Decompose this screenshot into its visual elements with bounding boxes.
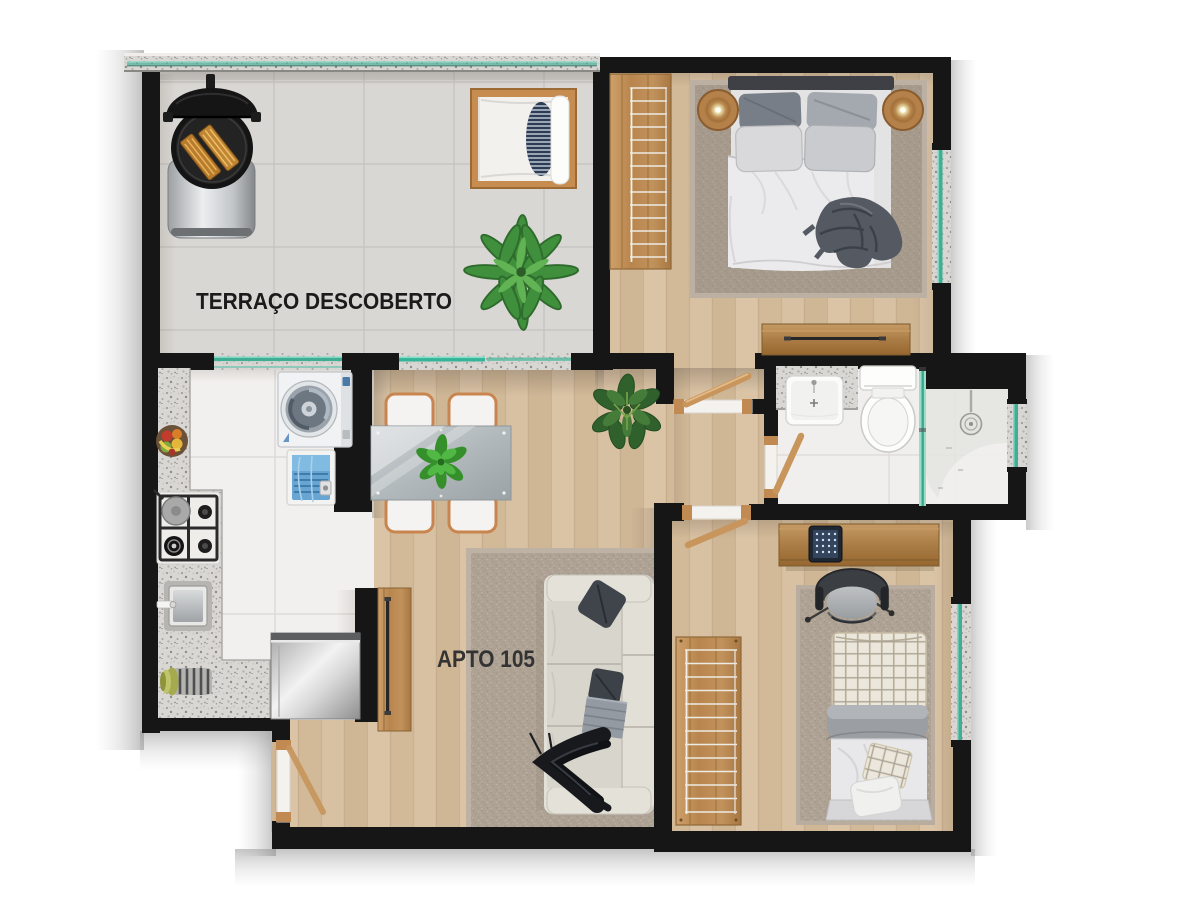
svg-text:APTO 105: APTO 105 [437, 646, 535, 673]
svg-text:TERRAÇO DESCOBERTO: TERRAÇO DESCOBERTO [196, 288, 452, 314]
